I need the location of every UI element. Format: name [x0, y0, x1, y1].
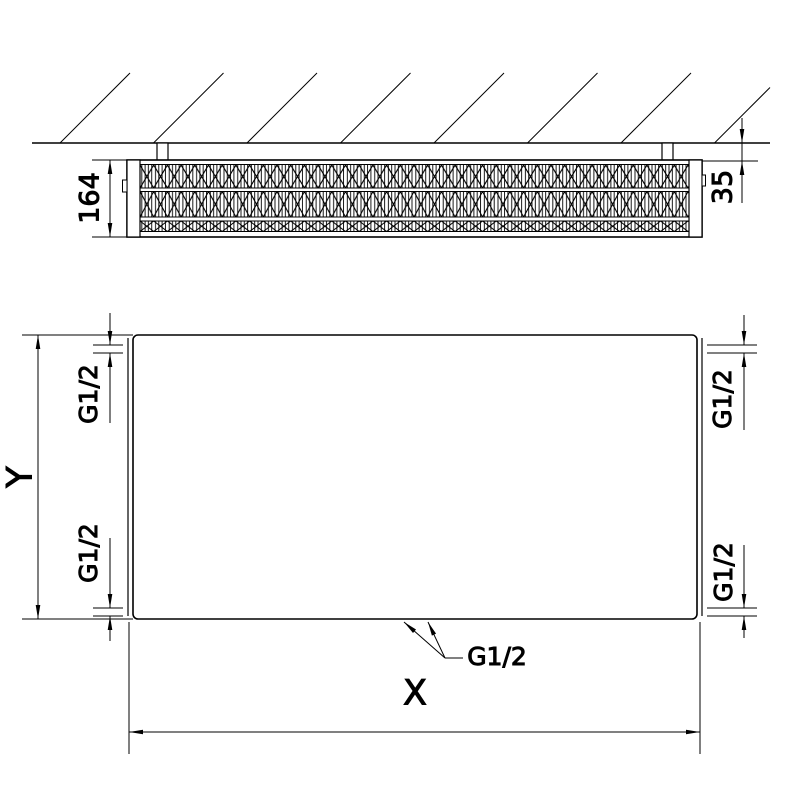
- front-view: Y X G1/2 G1/2: [0, 313, 757, 754]
- radiator-technical-drawing: 164 35 Y X: [0, 0, 800, 800]
- connection-dim-bottom-left: G1/2: [74, 523, 110, 641]
- convector-fins: [140, 165, 689, 232]
- depth-dimension-label: 164: [74, 172, 105, 224]
- width-dimension-label: X: [403, 673, 427, 713]
- connection-label-bottom-right: G1/2: [709, 542, 738, 602]
- mounting-bracket-right: [662, 143, 673, 161]
- dimension-width-x: X: [129, 622, 700, 754]
- radiator-front-panel: [133, 335, 697, 619]
- mounting-bracket-left: [157, 143, 168, 161]
- end-cap-right: [689, 160, 702, 237]
- connection-dim-top-right: G1/2: [708, 315, 744, 430]
- height-dimension-label: Y: [0, 466, 40, 489]
- connection-label-top-left: G1/2: [74, 364, 103, 424]
- connection-dim-top-left: G1/2: [74, 313, 110, 424]
- end-cap-left: [127, 160, 140, 237]
- connection-dim-bottom-right: G1/2: [709, 542, 744, 638]
- dimension-height-y: Y: [0, 335, 40, 619]
- wall-distance-dimension-label: 35: [707, 170, 738, 204]
- technical-drawing-page: 164 35 Y X: [0, 0, 800, 800]
- dimension-depth: 164: [74, 160, 127, 237]
- dimension-wall-distance: 35: [702, 118, 758, 204]
- connection-leader-bottom-center: G1/2: [404, 622, 527, 671]
- connection-label-bottom-left: G1/2: [74, 523, 103, 583]
- side-tab-left: [123, 180, 128, 192]
- connection-label-top-right: G1/2: [708, 369, 737, 429]
- top-view-section: 164 35: [32, 73, 770, 237]
- radiator-cross-section: [123, 160, 706, 237]
- side-tab-right: [702, 175, 706, 186]
- wall-hatching: [60, 73, 770, 143]
- connection-label-bottom-center: G1/2: [467, 642, 527, 671]
